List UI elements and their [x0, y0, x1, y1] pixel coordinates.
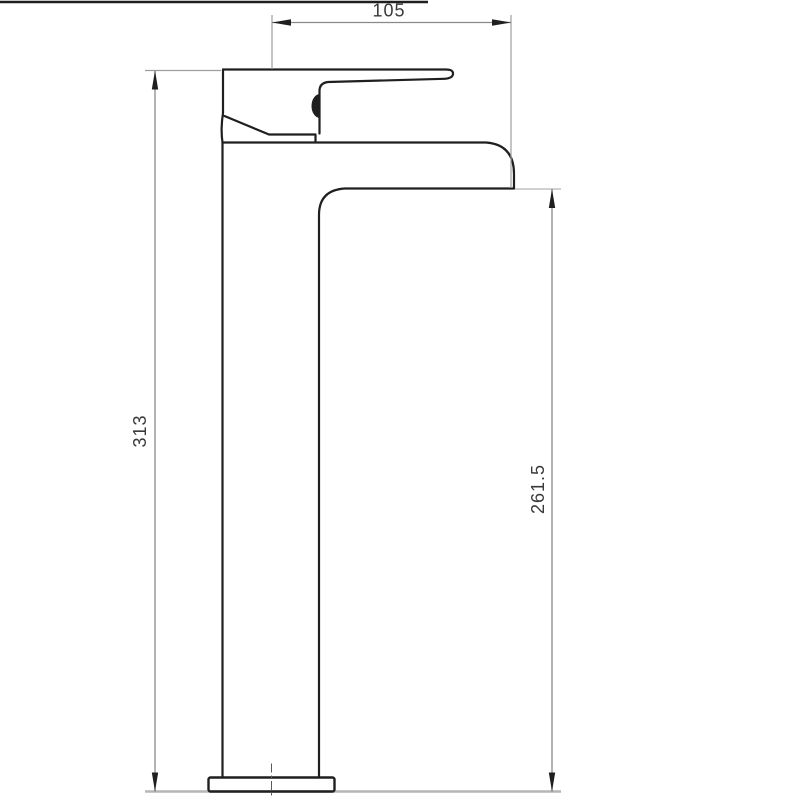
- spout-top-edge: [223, 143, 515, 189]
- arrowhead-top-icon: [152, 71, 158, 90]
- dimension-top: 105: [272, 1, 511, 189]
- arrowhead-right-icon: [492, 19, 511, 25]
- arrowhead-left-icon: [272, 19, 291, 25]
- arrowhead-bottom-icon: [549, 773, 555, 792]
- dimension-top-label: 105: [372, 1, 405, 21]
- handle-cap-chamfer: [225, 116, 316, 142]
- arrowhead-top-icon: [549, 189, 555, 208]
- dimension-left-label: 313: [130, 414, 150, 447]
- handle-cap-left-edge: [222, 70, 223, 143]
- faucet-outline: [209, 70, 515, 797]
- spout-underside: [319, 189, 514, 778]
- pivot-pin: [312, 94, 321, 118]
- handle-lever: [223, 70, 453, 134]
- arrowhead-bottom-icon: [152, 773, 158, 792]
- technical-drawing-canvas: 105 313 261.5: [0, 0, 800, 800]
- dimension-left: 313: [130, 71, 221, 792]
- drawing-sheet: 105 313 261.5: [0, 0, 800, 800]
- dimension-right-label: 261.5: [528, 464, 548, 514]
- dimension-right: 261.5: [515, 189, 561, 792]
